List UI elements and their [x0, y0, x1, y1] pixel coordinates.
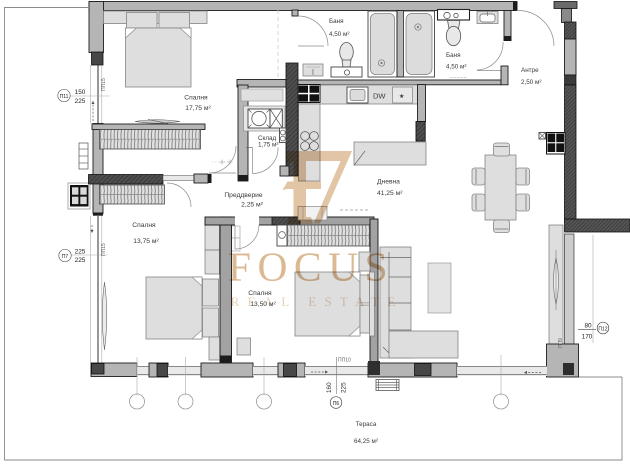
svg-text:2,50 м²: 2,50 м² [521, 79, 541, 86]
svg-text:1,75 м²: 1,75 м² [258, 142, 278, 149]
svg-text:2,25 м²: 2,25 м² [241, 202, 263, 209]
svg-text:★: ★ [399, 93, 404, 100]
svg-text:Преддверие: Преддверие [224, 192, 263, 199]
svg-text:ПП15: ПП15 [101, 243, 107, 256]
svg-text:Спалня: Спалня [184, 95, 208, 102]
svg-text:4,50 м²: 4,50 м² [446, 64, 466, 71]
svg-text:225: 225 [75, 249, 86, 256]
svg-text:80: 80 [584, 323, 592, 330]
svg-text:225: 225 [341, 382, 348, 393]
svg-text:150: 150 [75, 89, 86, 96]
svg-text:Антре: Антре [521, 67, 539, 74]
svg-text:ПП15: ПП15 [101, 78, 107, 91]
svg-text:П6: П6 [333, 401, 340, 407]
svg-text:Баня: Баня [329, 18, 344, 25]
svg-text:225: 225 [75, 257, 86, 264]
svg-text:17,75 м²: 17,75 м² [185, 105, 211, 112]
svg-text:П12: П12 [598, 326, 607, 332]
svg-text:П7: П7 [62, 254, 69, 260]
svg-text:64,25 м²: 64,25 м² [354, 438, 378, 445]
svg-text:170: 170 [582, 334, 593, 341]
svg-text:ПП10: ПП10 [338, 358, 351, 364]
svg-text:REAL ESTATE: REAL ESTATE [231, 294, 404, 309]
svg-text:_ _ _ _ _: _ _ _ _ _ [449, 73, 467, 78]
svg-text:Тераса: Тераса [356, 421, 377, 428]
svg-text:DW: DW [373, 92, 386, 101]
svg-text:13,75 м²: 13,75 м² [133, 238, 159, 245]
svg-text:160: 160 [326, 382, 333, 393]
svg-text:ПП9: ПП9 [558, 338, 564, 348]
svg-text:Баня: Баня [446, 52, 461, 59]
svg-text:П11: П11 [60, 94, 69, 100]
svg-text:225: 225 [75, 98, 86, 105]
svg-text:Спалня: Спалня [132, 222, 156, 229]
svg-text:41,25 м²: 41,25 м² [377, 190, 403, 197]
svg-text:Дневна: Дневна [377, 179, 400, 186]
svg-text:4,50 м²: 4,50 м² [329, 31, 349, 38]
svg-text:FOCUS: FOCUS [228, 244, 394, 290]
